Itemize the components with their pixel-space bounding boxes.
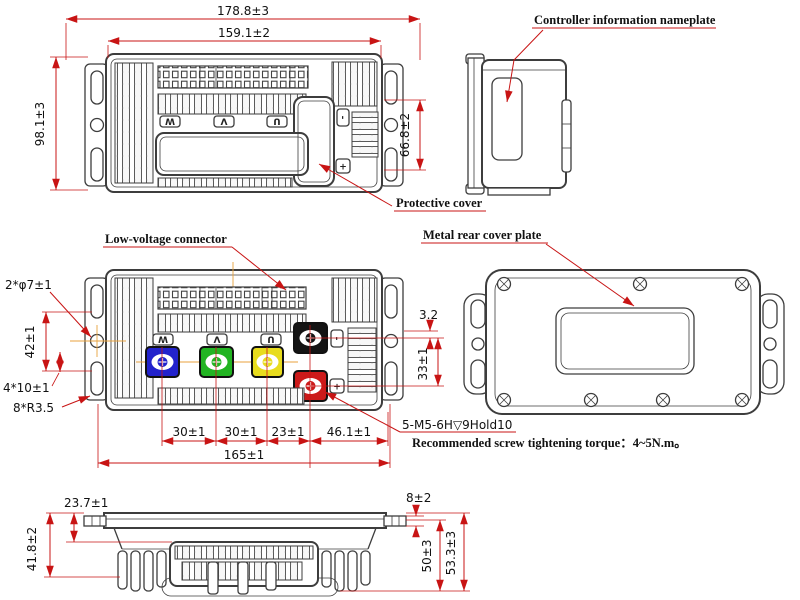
terminal-w-blue (146, 347, 179, 377)
svg-text:3.2: 3.2 (419, 308, 438, 322)
svg-text:2*φ7±1: 2*φ7±1 (5, 278, 52, 292)
phase-mark-v: V (207, 334, 227, 346)
dim-overall-depth: 98.1±3 (33, 57, 88, 190)
view-side: Controller information nameplate (466, 13, 716, 195)
terminal-u-yellow (252, 347, 283, 377)
mount-bracket-left-front (85, 278, 108, 400)
phase-mark-w: W (153, 334, 173, 346)
heatsink-fins-left-top (115, 63, 153, 183)
heatsink-fins-bottom-left (118, 551, 166, 591)
flange-tab-right (384, 516, 406, 526)
mount-flange (104, 513, 386, 528)
rear-cover-boss (556, 308, 694, 374)
dim-offset-small: 3.2 (404, 308, 438, 347)
bottom-center-block (170, 542, 318, 594)
svg-text:46.1±1: 46.1±1 (327, 425, 371, 439)
dim-hole-pitch: 42±1 (23, 312, 92, 371)
heatsink-fins-bottom-right (322, 551, 370, 591)
svg-text:4*10±1: 4*10±1 (3, 381, 50, 395)
svg-text:23±1: 23±1 (272, 425, 305, 439)
nameplate-label: Controller information nameplate (534, 13, 716, 27)
svg-text:165±1: 165±1 (224, 448, 265, 462)
protective-cover-label: Protective cover (396, 196, 483, 210)
plus-mark: + (339, 163, 347, 173)
mount-slot-bottom (91, 362, 103, 395)
svg-text:V: V (213, 334, 220, 344)
screw-spec-label: 5-M5-6H▽9Hold10 (402, 418, 512, 432)
low-voltage-connector (158, 287, 306, 309)
svg-text:8±2: 8±2 (406, 491, 431, 505)
minus-mark: - (337, 116, 347, 120)
svg-text:178.8±3: 178.8±3 (217, 4, 269, 18)
dim-terminal-pitches: 30±1 30±1 23±1 46.1±1 (162, 412, 388, 446)
svg-text:W: W (158, 334, 168, 344)
svg-text:98.1±3: 98.1±3 (33, 102, 47, 146)
svg-text:53.3±3: 53.3±3 (444, 531, 458, 575)
dim-mount-hole: 2*φ7±1 (5, 278, 91, 337)
view-bottom-elevation: 23.7±1 41.8±2 8±2 50±3 53.3±3 (25, 491, 470, 596)
view-rear-cover: Metal rear cover plate (421, 228, 784, 414)
drawing-canvas: W V U - + 178.8±3 159.1±2 98.1±3 (0, 0, 800, 600)
fins-right-inner-top (352, 112, 378, 157)
dim-side-height: 50±3 (406, 520, 446, 591)
controller-dimension-drawing: W V U - + 178.8±3 159.1±2 98.1±3 (0, 0, 800, 600)
phase-w-letter: W (165, 116, 175, 126)
svg-text:30±1: 30±1 (173, 425, 206, 439)
svg-text:-: - (331, 337, 341, 341)
terminal-mark-minus: - (331, 330, 343, 347)
mount-bracket-left (85, 64, 108, 186)
svg-text:33±1: 33±1 (416, 348, 430, 381)
heatsink-fins-right-front (332, 278, 377, 322)
svg-text:+: + (333, 383, 341, 393)
dim-terminal-pitch-v: 33±1 (416, 338, 438, 386)
rear-cover-label: Metal rear cover plate (423, 228, 542, 242)
heatsink-fins-right-top (332, 62, 377, 106)
mount-slot-top (91, 285, 103, 318)
phase-mark-u: U (261, 334, 281, 346)
flange-tab-left (84, 516, 106, 526)
view-top-plan: W V U - + 178.8±3 159.1±2 98.1±3 (33, 4, 486, 211)
svg-text:159.1±2: 159.1±2 (218, 26, 270, 40)
torque-note-label: Recommended screw tightening torque：4~5N… (412, 436, 687, 450)
phase-mark-v-top: V (214, 116, 234, 128)
dim-fillet: 8*R3.5 (13, 396, 90, 415)
low-voltage-connector-top (158, 66, 308, 88)
svg-text:50±3: 50±3 (420, 540, 434, 573)
svg-text:42±1: 42±1 (23, 326, 37, 359)
nameplate (492, 78, 522, 160)
side-connector-bumps (562, 100, 571, 172)
svg-text:U: U (267, 334, 274, 344)
mount-bracket-right-front (380, 278, 403, 400)
phase-v-letter: V (220, 116, 227, 126)
terminal-mark-plus-top: + (336, 159, 350, 173)
heatsink-fins-left-front (115, 278, 153, 398)
low-voltage-label: Low-voltage connector (105, 232, 227, 246)
svg-text:41.8±2: 41.8±2 (25, 527, 39, 571)
svg-text:66.8±2: 66.8±2 (398, 113, 412, 157)
svg-text:23.7±1: 23.7±1 (64, 496, 108, 510)
svg-text:8*R3.5: 8*R3.5 (13, 401, 54, 415)
phase-mark-u-top: U (267, 116, 287, 128)
phase-mark-w-top: W (160, 116, 180, 128)
phase-u-letter: U (273, 116, 280, 126)
svg-text:30±1: 30±1 (225, 425, 258, 439)
terminal-v-green (200, 347, 233, 377)
terminal-mark-minus-top: - (337, 109, 349, 126)
